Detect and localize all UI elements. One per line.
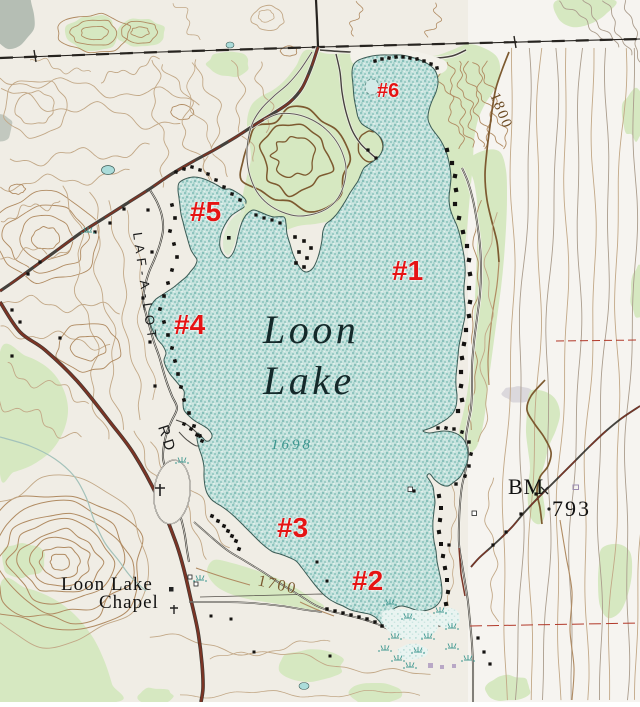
svg-text:#3: #3: [277, 512, 308, 543]
svg-text:793: 793: [552, 496, 591, 521]
svg-text:Chapel: Chapel: [99, 592, 159, 613]
svg-text:#2: #2: [352, 565, 383, 596]
svg-text:#1: #1: [392, 255, 423, 286]
svg-text:1698: 1698: [271, 437, 313, 453]
svg-text:BM: BM: [508, 474, 544, 499]
svg-text:Lake: Lake: [262, 358, 355, 403]
svg-text:#5: #5: [190, 196, 221, 227]
svg-text:#6: #6: [377, 80, 399, 102]
svg-text:Loon: Loon: [262, 307, 359, 352]
svg-text:#4: #4: [174, 309, 206, 340]
